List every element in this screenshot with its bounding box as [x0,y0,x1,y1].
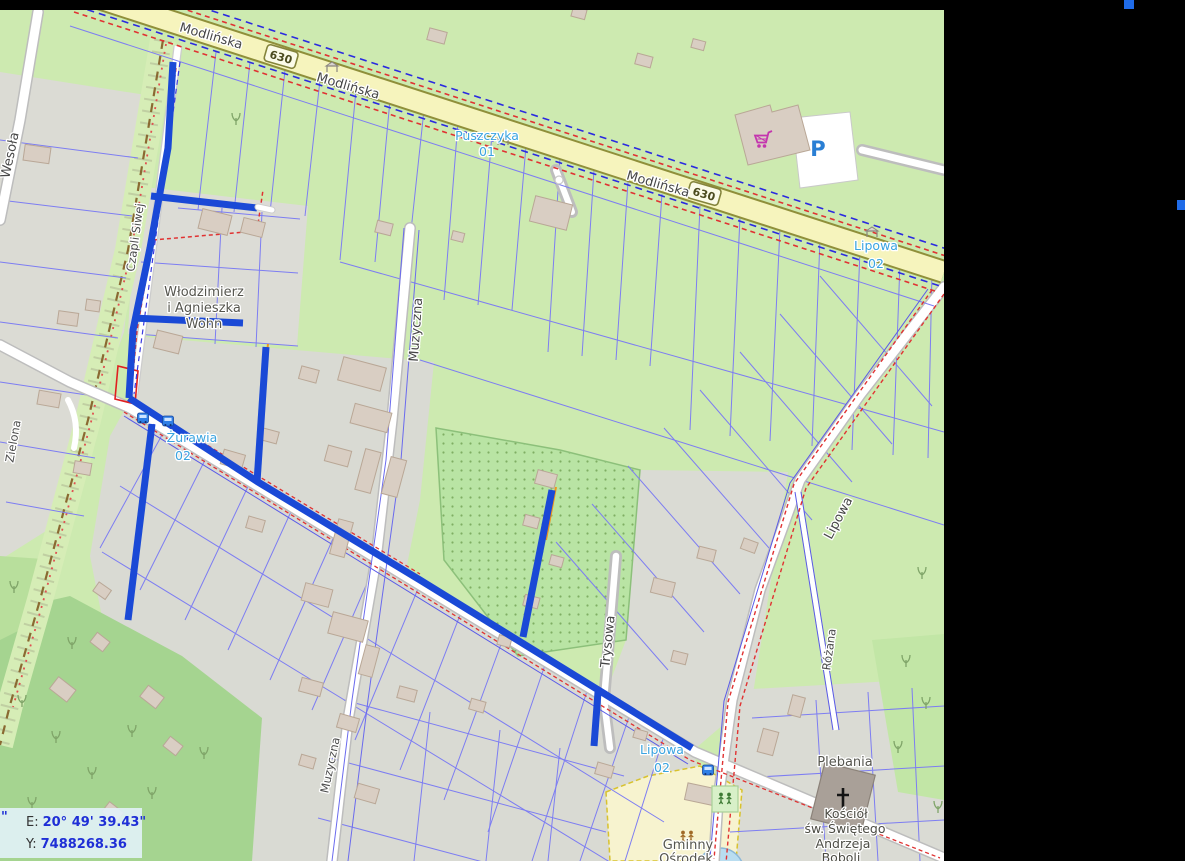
coordinate-y-value: 7488268.36 [41,837,127,852]
app-screen: 630 630 Modlińska Modlińska Modlińska We… [0,0,1185,861]
ui-fragment-top-right [1124,0,1134,9]
parking-icon: P [810,137,825,161]
svg-text:Ośrodek: Ośrodek [659,852,713,861]
svg-text:Andrzeja: Andrzeja [816,836,871,851]
map-canvas: 630 630 Modlińska Modlińska Modlińska We… [0,10,944,861]
svg-text:02: 02 [654,760,670,775]
poi-label-plebania: Plebania [817,755,873,770]
svg-text:św. Świętego: św. Świętego [804,821,885,836]
svg-text:Boboli: Boboli [822,850,861,861]
svg-text:01: 01 [479,144,495,159]
network-branch-south [594,692,598,746]
ui-fragment-right-edge [1177,200,1185,210]
stop-label-zurawia-02: Żurawia [167,430,218,445]
stop-label-puszczyka: Puszczyka [455,128,519,143]
coordinate-y-row: Y:7488268.36 [26,834,127,856]
poi-label-gminny-osrodek: Gminny [663,838,714,853]
coordinate-panel: E:20° 49' 39.43" Y:7488268.36 [0,808,142,858]
coordinate-y-label: Y: [26,837,37,852]
svg-text:i Agnieszka: i Agnieszka [167,301,241,316]
coordinate-e-label: E: [26,815,39,830]
coordinate-clipped-value: " [1,810,8,825]
playground-area [712,786,738,812]
stop-label-lipowa-02-bottom: Lipowa [640,742,684,757]
stop-label-lipowa-02-top: Lipowa [854,238,898,253]
svg-text:02: 02 [175,448,191,463]
svg-text:02: 02 [868,256,884,271]
coordinate-e-row: E:20° 49' 39.43" [26,812,146,834]
poi-label-kosciol: Kościół [824,806,868,821]
coordinate-e-value: 20° 49' 39.43" [43,815,147,830]
map-viewport[interactable]: 630 630 Modlińska Modlińska Modlińska We… [0,10,944,861]
poi-label-wohn: Włodzimierz [164,285,244,300]
svg-text:Wohn: Wohn [186,317,223,332]
